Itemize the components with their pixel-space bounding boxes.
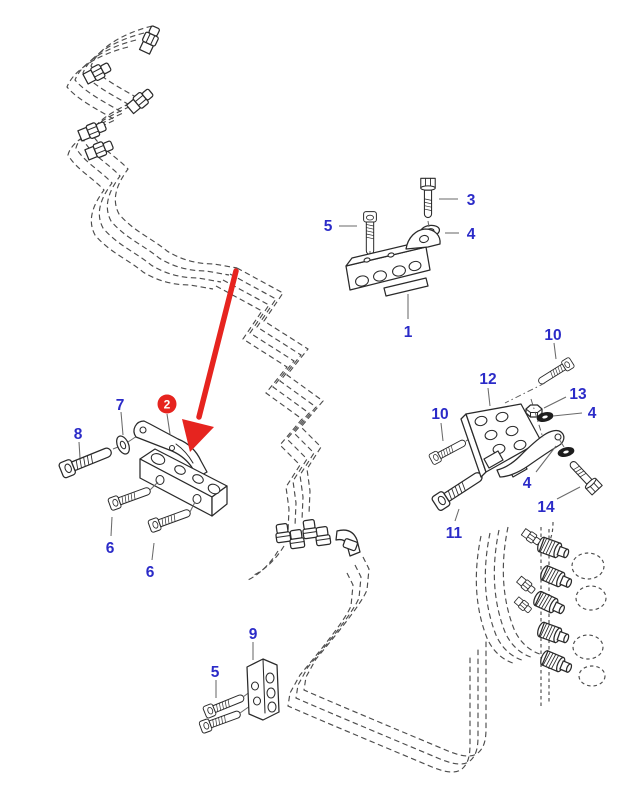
clamp-bar-2 [140,449,227,516]
callout-3[interactable]: 3 [467,192,476,209]
callout-6[interactable]: 6 [106,540,115,557]
socket-screw-6 [148,506,193,533]
callout-4[interactable]: 4 [523,475,532,492]
pipe-bundle-zigzag [216,268,323,532]
assembly-bracket-12 [428,357,602,512]
bracket-1 [346,229,440,296]
clamp-block-9 [247,659,279,720]
leader-line [557,487,580,499]
pipe-fitting [315,526,331,546]
parts-diagram-page: 5 3 4 1 10 12 13 4 10 4 14 11 7 8 6 6 9 … [0,0,627,792]
leader-line [167,414,170,434]
pipe-union-fitting [84,138,114,161]
callout-12[interactable]: 12 [479,371,496,388]
callout-6[interactable]: 6 [146,564,155,581]
injector-fitting [536,621,571,646]
leader-line [441,423,443,441]
leader-line [111,517,112,536]
pipe-union-fitting [77,119,107,142]
callout-5[interactable]: 5 [211,664,220,681]
highlight-callout-2[interactable]: 2 [164,398,171,412]
assembly-bracket-1 [346,178,440,296]
washer-7 [114,434,132,456]
socket-screw-6 [108,484,153,511]
leader-line [79,442,80,458]
injector-fitting [539,650,574,676]
elbow-fitting [336,530,360,556]
leader-line [455,509,459,521]
leader-line [121,412,123,435]
pipe-loop-lower [248,546,486,772]
callout-4[interactable]: 4 [467,226,476,243]
washer-4-black [557,446,575,458]
hex-bolt-3 [421,178,435,217]
highlight-arrow-shaft [199,271,236,417]
callout-10[interactable]: 10 [431,406,448,423]
callout-4[interactable]: 4 [588,405,597,422]
callout-1[interactable]: 1 [404,324,413,341]
highlight-part-2: 2 [158,271,237,452]
pipe-fitting [302,519,318,539]
socket-bolt-10 [536,357,575,387]
elbow-fitting [521,528,542,547]
injector-fitting [539,565,574,591]
callout-10[interactable]: 10 [544,327,561,344]
injector-fitting [536,536,571,561]
socket-bolt-8 [58,444,114,479]
callout-9[interactable]: 9 [249,626,258,643]
pipe-fitting [289,529,305,549]
pipe-union-fitting [126,87,156,115]
callout-8[interactable]: 8 [74,426,83,443]
leader-line [554,343,556,359]
leader-line [152,543,154,560]
socket-bolt-10 [428,437,467,465]
callout-13[interactable]: 13 [569,386,587,403]
socket-bolt-11 [431,468,486,511]
socket-screw-5 [364,212,377,255]
elbow-fitting [514,596,533,614]
leader-line [553,413,582,416]
callout-11[interactable]: 11 [446,525,463,542]
fitting-cluster-center [275,519,360,556]
hex-bolt-14 [566,458,602,495]
callout-7[interactable]: 7 [116,397,125,414]
injector-fittings-pump [514,528,574,676]
elbow-fitting [516,575,537,595]
callout-5[interactable]: 5 [324,218,333,235]
callout-14[interactable]: 14 [537,499,555,516]
parts-diagram: 5 3 4 1 10 12 13 4 10 4 14 11 7 8 6 6 9 … [0,0,627,792]
leader-line [488,388,490,406]
leader-line [544,397,566,408]
